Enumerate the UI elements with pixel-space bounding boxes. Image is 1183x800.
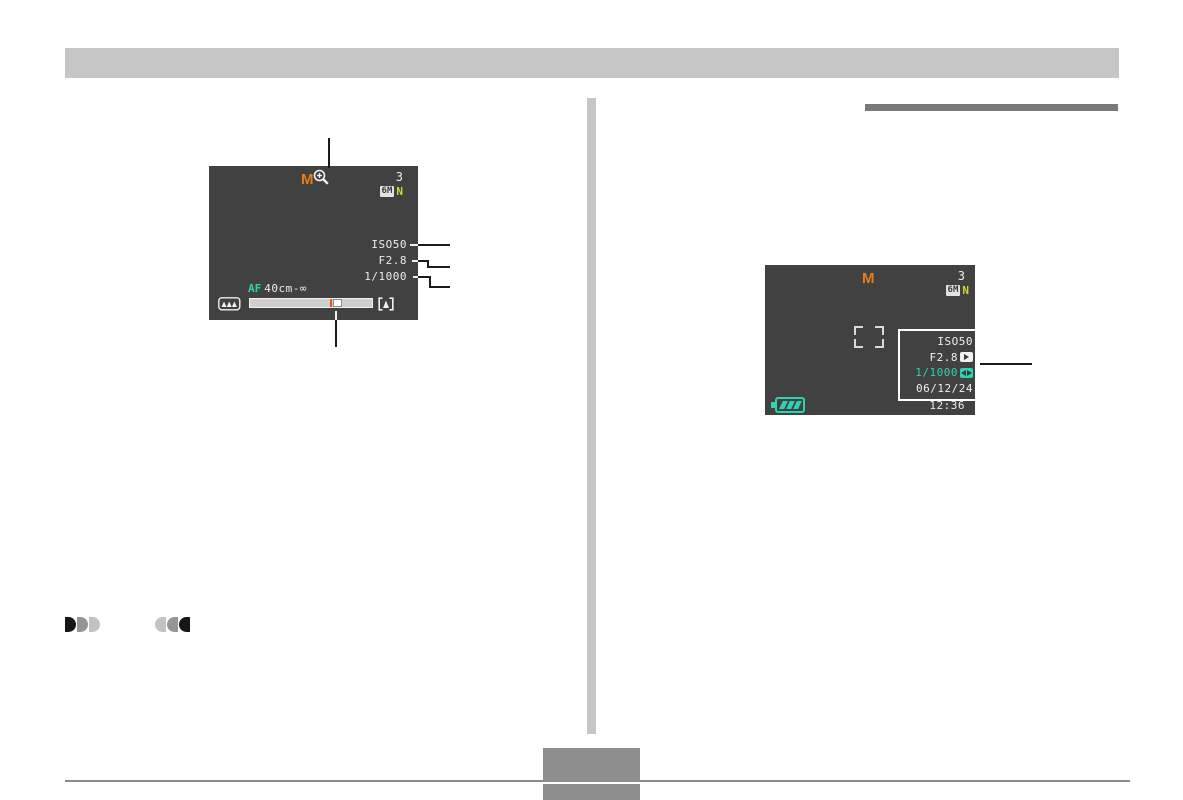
quality-indicator: N [962, 284, 969, 297]
shutter-speed-value: 1/1000 [364, 270, 407, 283]
digital-zoom-magnifier-icon [313, 169, 331, 187]
glyph-segment [155, 617, 166, 632]
wide-angle-icon [218, 297, 241, 311]
focus-bracket-corner [854, 326, 863, 335]
left-right-arrow-badge-icon [960, 368, 973, 378]
glyph-segment [65, 617, 76, 632]
callout-line-iso-inner [410, 244, 418, 246]
zoom-indicator-bar [249, 298, 373, 308]
focus-frame-brackets [854, 326, 884, 348]
column-divider [587, 98, 596, 734]
panel-aperture-row: F2.8 [930, 351, 974, 364]
glyph-segment [179, 617, 190, 632]
mode-indicator: M [862, 270, 875, 287]
wide-zoom-glyph-icon [155, 617, 190, 632]
callout-line-settings-panel [980, 363, 1032, 365]
mode-indicator: M [301, 171, 314, 188]
telephoto-icon [378, 297, 394, 311]
af-label: AF [248, 282, 261, 295]
image-size-badge: 6M [946, 285, 961, 296]
exposure-settings-panel: ISO50 F2.8 1/1000 06/12/24 [898, 329, 980, 401]
callout-line-aperture-seg3 [427, 266, 450, 268]
right-arrow-badge-icon [960, 352, 973, 362]
image-size-quality-row: 6M N [946, 284, 969, 297]
callout-line-zoom-pointer [335, 320, 337, 347]
focus-range-value: 40cm-∞ [264, 282, 307, 295]
focus-bracket-corner [875, 326, 884, 335]
battery-body [775, 397, 805, 413]
panel-iso-row: ISO50 [937, 335, 973, 348]
callout-line-iso [418, 244, 450, 246]
focus-range-row: AF 40cm-∞ [248, 282, 307, 295]
focus-bracket-corner [854, 339, 863, 348]
callout-line-zoom-icon [328, 138, 330, 168]
battery-level-icon [771, 397, 805, 413]
callout-line-shutter-seg3 [429, 286, 450, 288]
panel-shutter-row: 1/1000 [915, 366, 973, 379]
iso-value: ISO50 [371, 238, 407, 251]
image-size-quality-row: 6M N [380, 185, 403, 198]
page-header-bar [65, 48, 1119, 78]
manual-page: M 3 6M N ISO50 F2.8 1/1000 AF 40cm-∞ [0, 0, 1183, 800]
section-heading-underline [865, 104, 1118, 111]
zoom-pointer [333, 299, 342, 307]
telephoto-zoom-glyph-icon [65, 617, 100, 632]
glyph-segment [77, 617, 88, 632]
quality-indicator: N [396, 185, 403, 198]
remaining-shots-count: 3 [958, 269, 965, 283]
lcd-screen-manual-mode: M 3 6M N ISO50 F2.8 1/1000 AF 40cm-∞ [209, 166, 418, 320]
image-size-badge: 6M [380, 186, 395, 197]
optical-digital-zoom-boundary-marker [330, 299, 332, 307]
aperture-value: F2.8 [930, 351, 959, 364]
glyph-segment [167, 617, 178, 632]
focus-bracket-corner [875, 339, 884, 348]
aperture-value: F2.8 [379, 254, 408, 267]
callout-line-zoom-pointer-inner [335, 311, 337, 320]
remaining-shots-count: 3 [396, 170, 403, 184]
shutter-speed-value: 1/1000 [915, 366, 958, 379]
page-number-box [543, 748, 640, 781]
glyph-segment [89, 617, 100, 632]
iso-value: ISO50 [937, 335, 973, 348]
date-value: 06/12/24 [916, 382, 973, 395]
lcd-screen-exposure-panel: M 3 6M N 12:36 ISO50 F2.8 1/1000 [765, 265, 975, 415]
page-number-box-lower [543, 784, 640, 800]
panel-date-row: 06/12/24 [916, 382, 973, 395]
